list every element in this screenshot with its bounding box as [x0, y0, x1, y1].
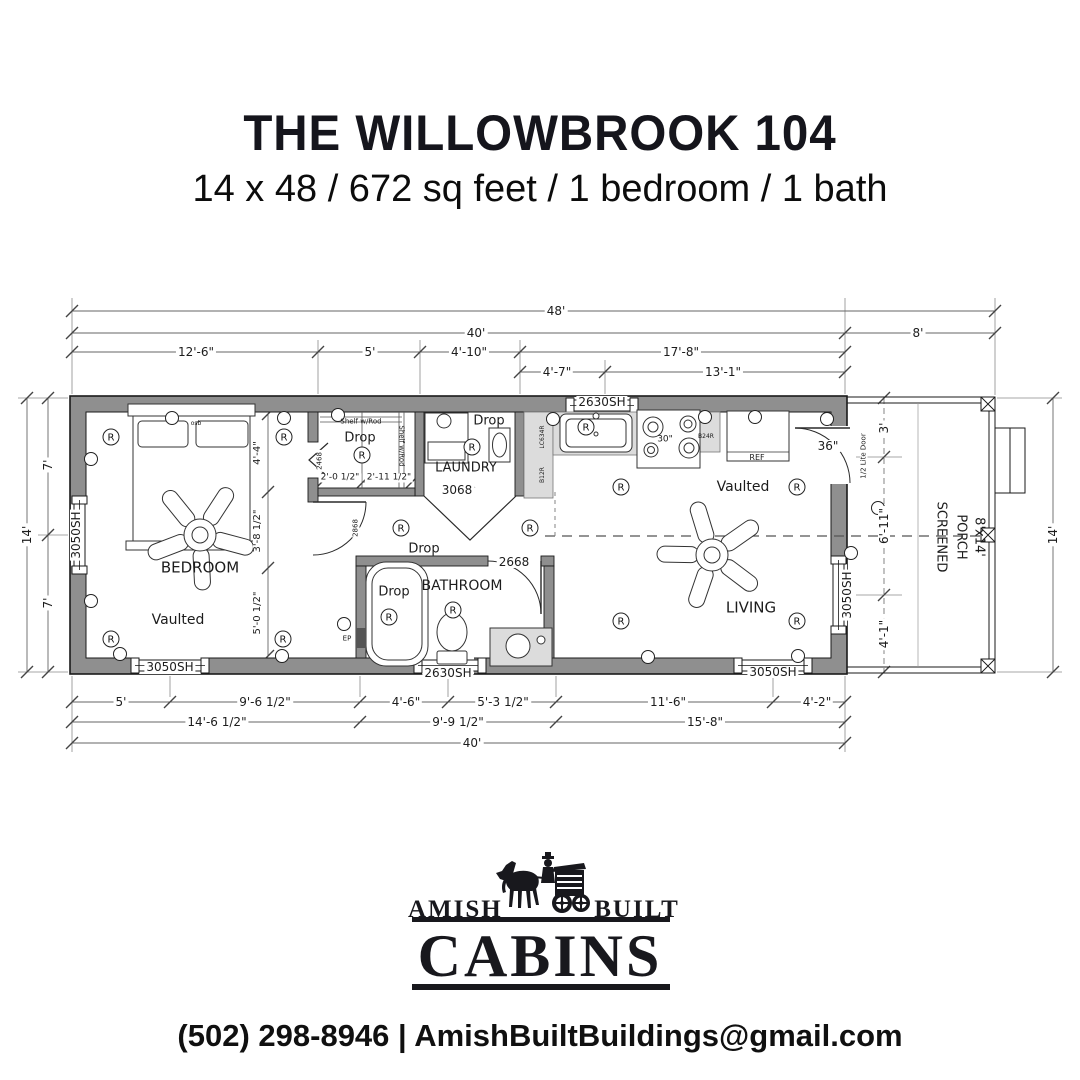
- wall-light-icon: [276, 650, 289, 663]
- living-ceiling-fan: [657, 500, 762, 610]
- wall-light-icon: [642, 651, 655, 664]
- logo-divider-bottom: [412, 984, 670, 990]
- screened-porch: [847, 397, 1025, 673]
- recessed-light-icon: R: [103, 631, 119, 647]
- toilet: [437, 613, 467, 664]
- svg-text:R: R: [794, 483, 801, 494]
- electrical-panel: [356, 628, 366, 648]
- wall-light-icon: [338, 618, 351, 631]
- svg-text:R: R: [281, 433, 288, 444]
- recessed-light-icon: R: [613, 479, 629, 495]
- recessed-light-icon: R: [381, 609, 397, 625]
- porch-steps: [995, 428, 1025, 493]
- phone-number: (502) 298-8946: [177, 1018, 389, 1053]
- recessed-light-icon: R: [276, 429, 292, 445]
- recessed-light-icon: R: [789, 479, 805, 495]
- recessed-light-icon: R: [445, 602, 461, 618]
- recessed-light-icon: R: [578, 419, 594, 435]
- recessed-light-icon: R: [613, 613, 629, 629]
- svg-text:R: R: [359, 451, 366, 462]
- recessed-light-icon: R: [464, 439, 480, 455]
- kitchen-sink: [560, 413, 632, 452]
- wall-light-icon: [547, 413, 560, 426]
- bathroom-vanity: [490, 628, 552, 666]
- wall-light-icon: [872, 502, 885, 515]
- horse-buggy-icon: [482, 851, 602, 921]
- water-heater: [489, 428, 510, 462]
- svg-text:R: R: [618, 617, 625, 628]
- svg-text:R: R: [583, 423, 590, 434]
- contact-separator: |: [398, 1018, 407, 1053]
- recessed-light-icon: R: [103, 429, 119, 445]
- email-address: AmishBuiltBuildings@gmail.com: [414, 1018, 902, 1053]
- svg-text:R: R: [618, 483, 625, 494]
- wall-light-icon: [821, 413, 834, 426]
- svg-text:R: R: [108, 433, 115, 444]
- logo-text-cabins: CABINS: [0, 922, 1080, 991]
- wall-light-icon: [85, 453, 98, 466]
- wall-light-icon: [166, 412, 179, 425]
- range: [637, 410, 700, 468]
- recessed-light-icon: R: [789, 613, 805, 629]
- recessed-light-icon: R: [275, 631, 291, 647]
- svg-text:R: R: [398, 524, 405, 535]
- recessed-light-icon: R: [354, 447, 370, 463]
- svg-text:R: R: [450, 606, 457, 617]
- wall-light-icon: [278, 412, 291, 425]
- contact-line: (502) 298-8946 | AmishBuiltBuildings@gma…: [0, 1018, 1080, 1054]
- svg-text:R: R: [794, 617, 801, 628]
- svg-text:R: R: [280, 635, 287, 646]
- wall-light-icon: [845, 547, 858, 560]
- wall-light-icon: [792, 650, 805, 663]
- svg-text:R: R: [386, 613, 393, 624]
- wall-light-icon: [749, 411, 762, 424]
- svg-text:R: R: [469, 443, 476, 454]
- wall-light-icon: [332, 409, 345, 422]
- page: THE WILLOWBROOK 104 14 x 48 / 672 sq fee…: [0, 0, 1080, 1080]
- wall-light-icon: [85, 595, 98, 608]
- recessed-light-icon: R: [522, 520, 538, 536]
- wall-light-icon: [699, 411, 712, 424]
- bathtub: [366, 562, 428, 666]
- recessed-light-icon: R: [393, 520, 409, 536]
- svg-text:R: R: [108, 635, 115, 646]
- wall-light-icon: [114, 648, 127, 661]
- svg-text:R: R: [527, 524, 534, 535]
- washer: [425, 413, 468, 463]
